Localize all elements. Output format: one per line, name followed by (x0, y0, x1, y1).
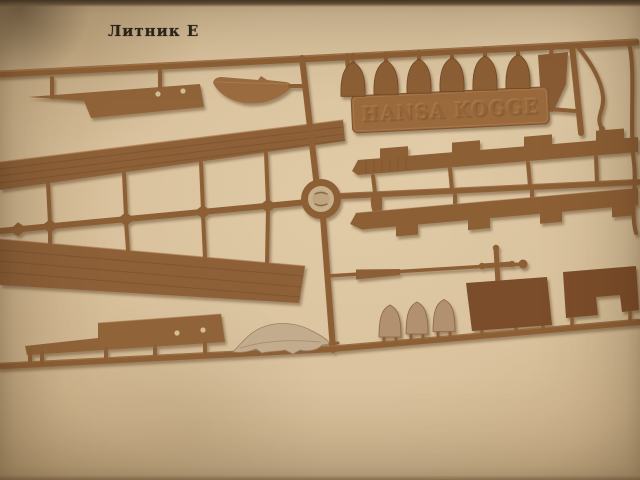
deck-side-panel-with-holes (28, 84, 204, 118)
dark-panel-right (563, 266, 639, 318)
lower-deck-plank (0, 239, 305, 303)
runner-hub (301, 179, 341, 219)
sprue-scene: HANSA KOGGE HANSA KOGGE HANSA KOGGE (0, 0, 640, 480)
sprue-drawing: HANSA KOGGE HANSA KOGGE HANSA KOGGE (0, 0, 640, 480)
upper-deck-plank (0, 120, 345, 190)
photo-of-model-sprue: HANSA KOGGE HANSA KOGGE HANSA KOGGE (0, 0, 640, 480)
photo-bottom-edge (0, 475, 640, 480)
photo-top-edge (0, 0, 640, 7)
dark-panel-left (466, 277, 552, 331)
sprue-caption: Литник Е (108, 22, 199, 40)
half-deck-crescent (213, 76, 303, 103)
